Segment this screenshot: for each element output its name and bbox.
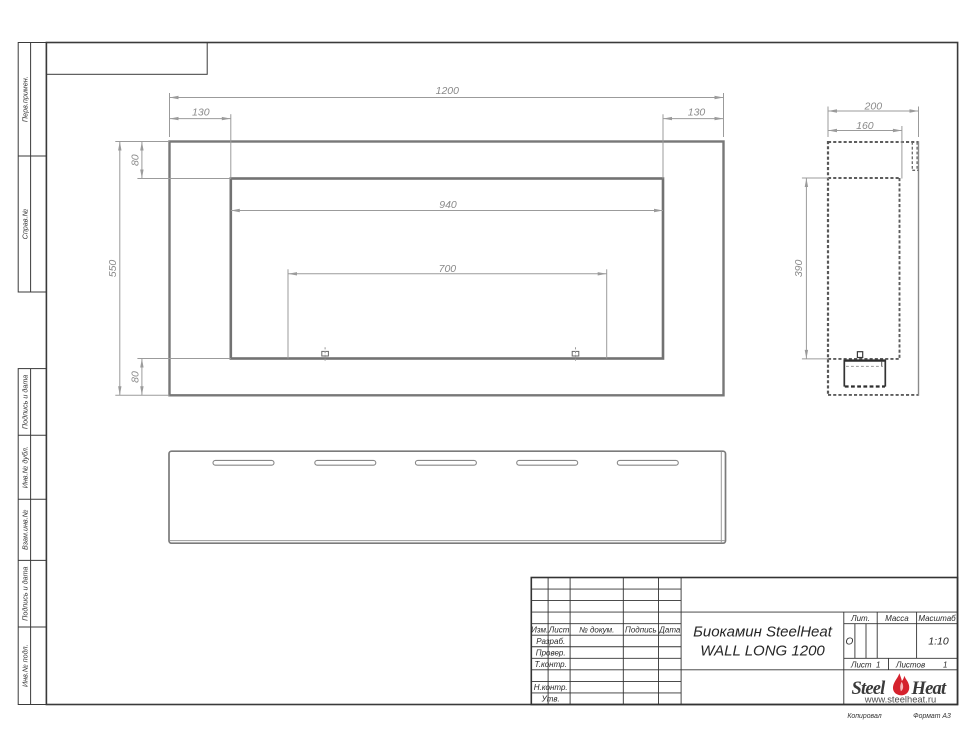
svg-text:Лист: Лист	[548, 625, 570, 634]
svg-text:WALL LONG 1200: WALL LONG 1200	[700, 643, 825, 660]
svg-text:Провер.: Провер.	[536, 648, 566, 657]
svg-text:Масштаб: Масштаб	[918, 614, 956, 623]
svg-text:1: 1	[943, 660, 947, 669]
svg-text:Формат А3: Формат А3	[913, 713, 951, 720]
svg-text:Разраб.: Разраб.	[536, 637, 565, 646]
svg-text:Лит.: Лит.	[850, 614, 870, 623]
svg-text:О: О	[846, 637, 854, 648]
svg-text:www.steelheat.ru: www.steelheat.ru	[864, 693, 936, 704]
svg-text:940: 940	[439, 199, 457, 211]
svg-text:130: 130	[688, 107, 706, 119]
svg-text:№ докум.: № докум.	[579, 625, 614, 634]
svg-text:Подпись: Подпись	[625, 625, 657, 634]
svg-text:Биокамин SteelHeat: Биокамин SteelHeat	[693, 623, 833, 640]
svg-text:Инв.№ дубл.: Инв.№ дубл.	[21, 446, 30, 488]
svg-text:700: 700	[439, 263, 457, 275]
svg-text:Н.контр.: Н.контр.	[534, 683, 568, 692]
svg-text:80: 80	[130, 154, 142, 166]
svg-text:Подпись и дата: Подпись и дата	[21, 567, 30, 621]
svg-text:Перв.примен.: Перв.примен.	[21, 76, 30, 122]
svg-text:Листов: Листов	[895, 660, 925, 669]
svg-text:Взам.инв.№: Взам.инв.№	[21, 509, 30, 550]
svg-text:Инв.№ подл.: Инв.№ подл.	[21, 644, 30, 687]
svg-text:Лист: Лист	[850, 660, 872, 669]
svg-text:1: 1	[876, 660, 880, 669]
svg-text:Утв.: Утв.	[541, 695, 560, 704]
svg-text:160: 160	[856, 120, 874, 132]
svg-text:1200: 1200	[436, 85, 460, 97]
svg-text:Копировал: Копировал	[847, 713, 881, 720]
svg-text:200: 200	[864, 100, 883, 112]
svg-text:130: 130	[192, 107, 210, 119]
svg-text:Т.контр.: Т.контр.	[535, 660, 567, 669]
svg-text:Изм.: Изм.	[531, 625, 548, 634]
svg-text:1:10: 1:10	[928, 636, 949, 648]
svg-text:550: 550	[107, 260, 119, 278]
svg-text:Дата: Дата	[658, 625, 681, 634]
svg-text:Масса: Масса	[885, 614, 909, 623]
svg-text:390: 390	[793, 259, 805, 277]
svg-text:80: 80	[130, 371, 142, 383]
svg-text:Справ.№: Справ.№	[21, 208, 30, 239]
svg-text:Подпись и дата: Подпись и дата	[21, 375, 30, 429]
